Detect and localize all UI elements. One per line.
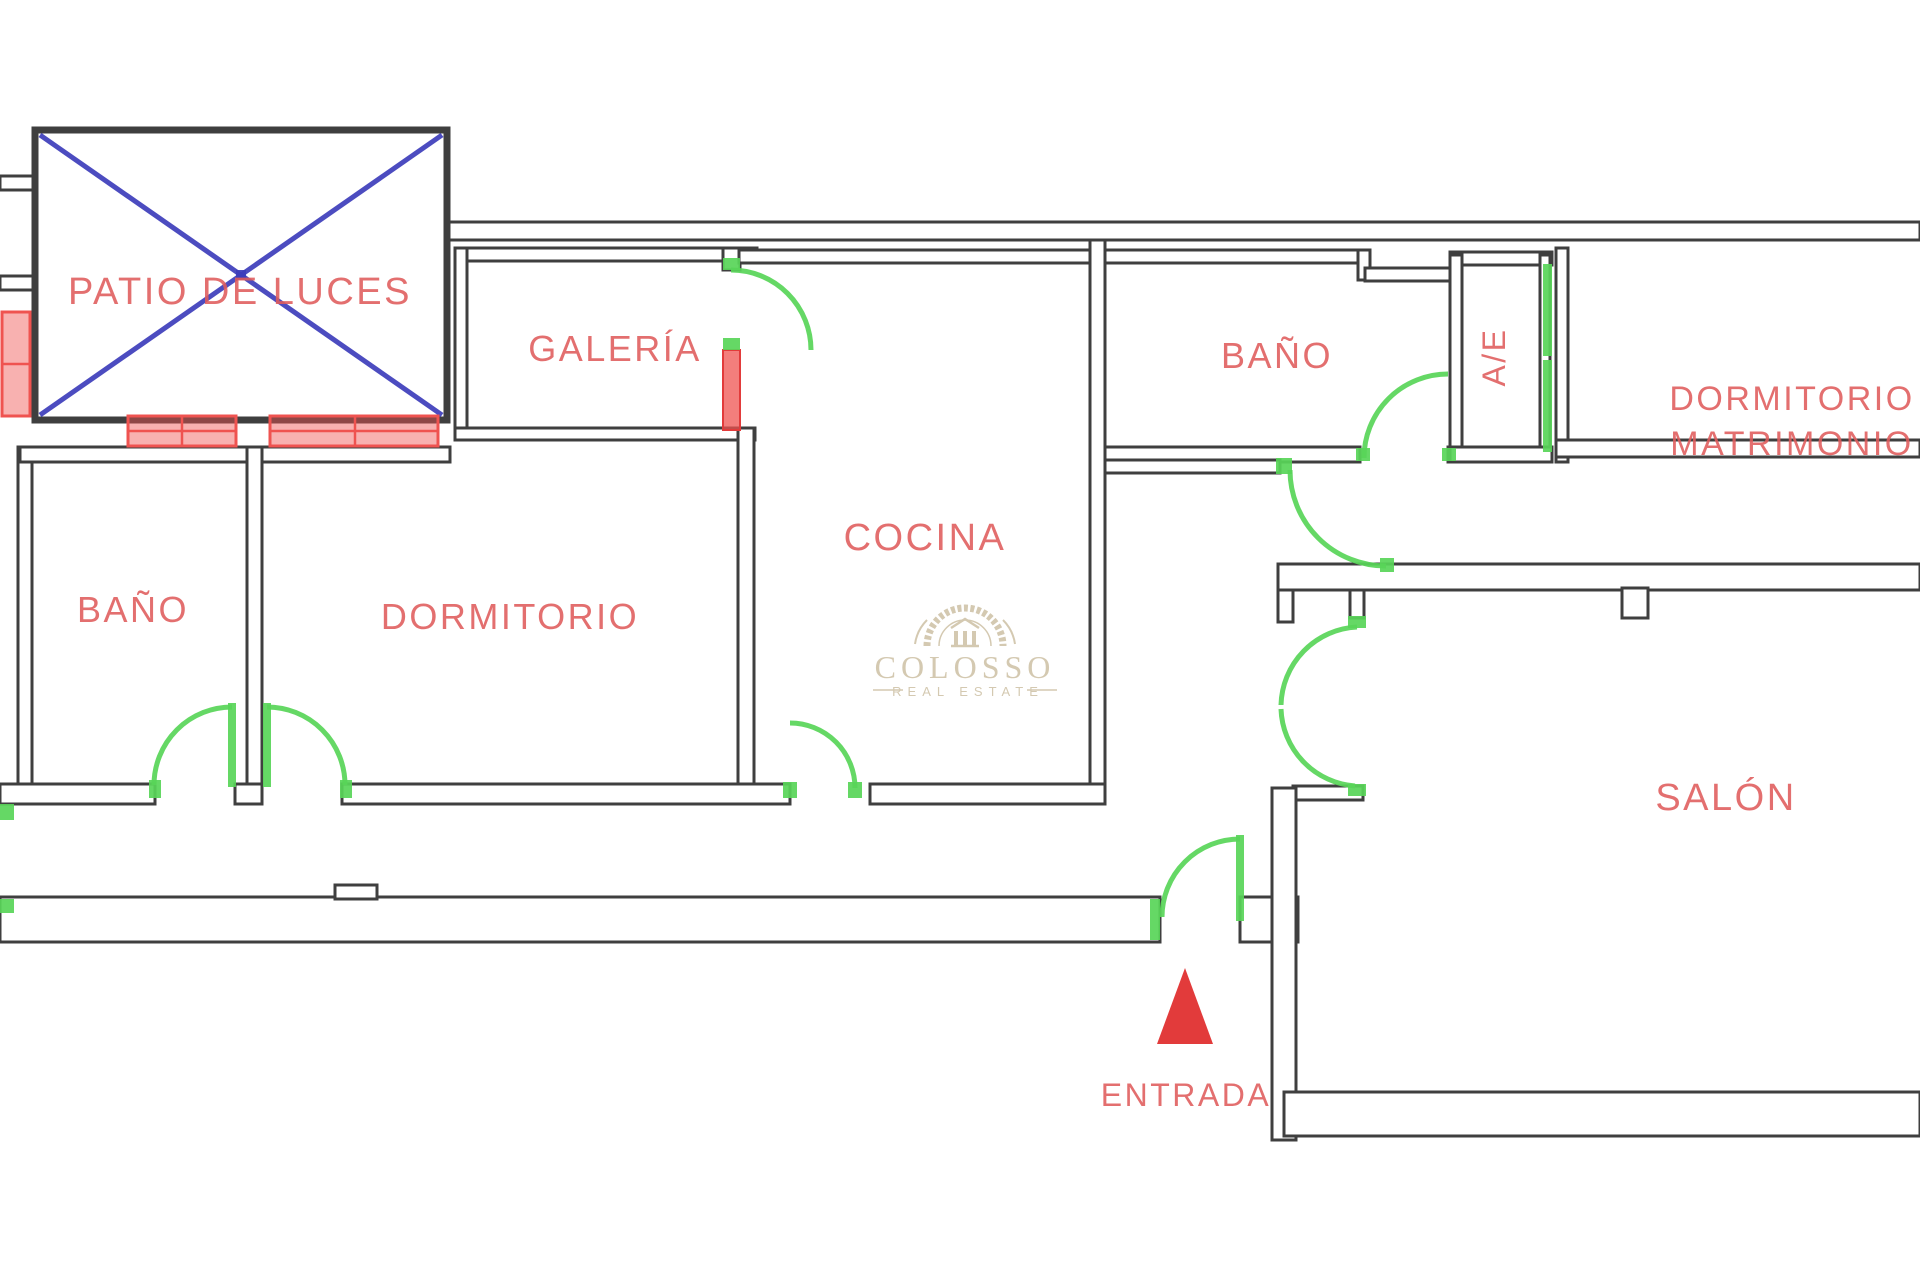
door-bano-left: [149, 703, 236, 798]
wall-cocina-top: [739, 250, 1090, 263]
label-salon: SALÓN: [1655, 776, 1796, 819]
wall-galeria-bottom: [455, 428, 755, 440]
wall-left-stub-upper: [0, 176, 35, 190]
label-dormitorio: DORMITORIO: [381, 596, 639, 637]
wall-bano-dorm-divider: [247, 447, 262, 787]
entrance-arrow-icon: [1157, 968, 1213, 1044]
label-dorm-mat-line1: DORMITORIO: [1669, 380, 1914, 418]
wall-corridor-1: [0, 784, 155, 804]
label-bano-top: BAÑO: [1221, 335, 1333, 376]
door-dormitorio: [263, 703, 352, 798]
wall-galeria-top: [455, 248, 757, 261]
label-patio: PATIO DE LUCES: [68, 271, 412, 313]
wall-bano-top-lower: [1365, 268, 1457, 281]
wall-galeria-left: [455, 248, 467, 440]
wall-ae-top: [1450, 252, 1552, 265]
watermark-temple-icon: [951, 619, 979, 646]
wall-corridor-4: [870, 784, 1105, 804]
wall-salon-west-stub: [1278, 590, 1293, 622]
wall-cocina-east: [1090, 240, 1105, 790]
door-corridor-left-lower: [0, 899, 14, 913]
wall-exterior-bottom: [0, 897, 1160, 942]
door-galeria: [723, 258, 811, 350]
wall-cocina-west: [738, 428, 754, 788]
label-ae: A/E: [1476, 327, 1512, 386]
wall-double-door-top-stub: [1350, 590, 1364, 618]
wall-bottom-notch: [335, 885, 377, 899]
entrance-label: ENTRADA: [1101, 1077, 1271, 1113]
label-cocina: COCINA: [844, 517, 1007, 559]
watermark-name: COLOSSO: [875, 649, 1056, 685]
door-bano-top: [1356, 374, 1456, 461]
door-salon-double: [1281, 616, 1366, 796]
label-galeria: GALERÍA: [528, 328, 702, 369]
wall-ae-bottom: [1450, 447, 1552, 462]
wall-bano-top-upper: [1105, 250, 1360, 263]
wall-hall-north-b: [1105, 460, 1280, 473]
red-wall-galeria-cocina: [723, 350, 740, 430]
wall-salon-bottom: [1284, 1092, 1920, 1136]
floor-plan-canvas: COLOSSO REAL ESTATE ENTRADA PATIO DE LUC…: [0, 0, 1920, 1280]
door-entrance: [1150, 835, 1244, 940]
wall-rooms-top: [20, 447, 450, 462]
wall-salon-north-notch: [1622, 588, 1648, 618]
label-dorm-mat-line2: MATRIMONIO: [1670, 425, 1913, 463]
wall-left-stub-lower: [0, 276, 35, 290]
wall-ae-left: [1450, 255, 1462, 462]
floor-plan-svg: COLOSSO REAL ESTATE ENTRADA PATIO DE LUC…: [0, 0, 1920, 1280]
label-bano-left: BAÑO: [77, 589, 189, 630]
wall-corridor-3: [342, 784, 790, 804]
window-patio-bottom-1: [128, 416, 236, 446]
wall-salon-west-lower: [1272, 788, 1296, 1140]
wall-corridor-2: [235, 784, 262, 804]
wall-exterior-left: [18, 447, 32, 804]
watermark-tagline: REAL ESTATE: [892, 684, 1044, 699]
entrance-marker: ENTRADA: [1101, 968, 1271, 1113]
door-cocina: [783, 723, 862, 798]
wall-exterior-top: [435, 222, 1920, 240]
door-corridor-left-upper: [0, 804, 14, 820]
door-vestibule: [1276, 458, 1394, 572]
wall-dorm-mat-west: [1556, 248, 1568, 462]
window-patio-left: [2, 312, 30, 416]
colosso-watermark: COLOSSO REAL ESTATE: [873, 608, 1057, 699]
window-patio-bottom-2: [270, 416, 438, 446]
watermark-laurel-left: [915, 620, 927, 644]
wall-salon-north: [1278, 564, 1920, 590]
